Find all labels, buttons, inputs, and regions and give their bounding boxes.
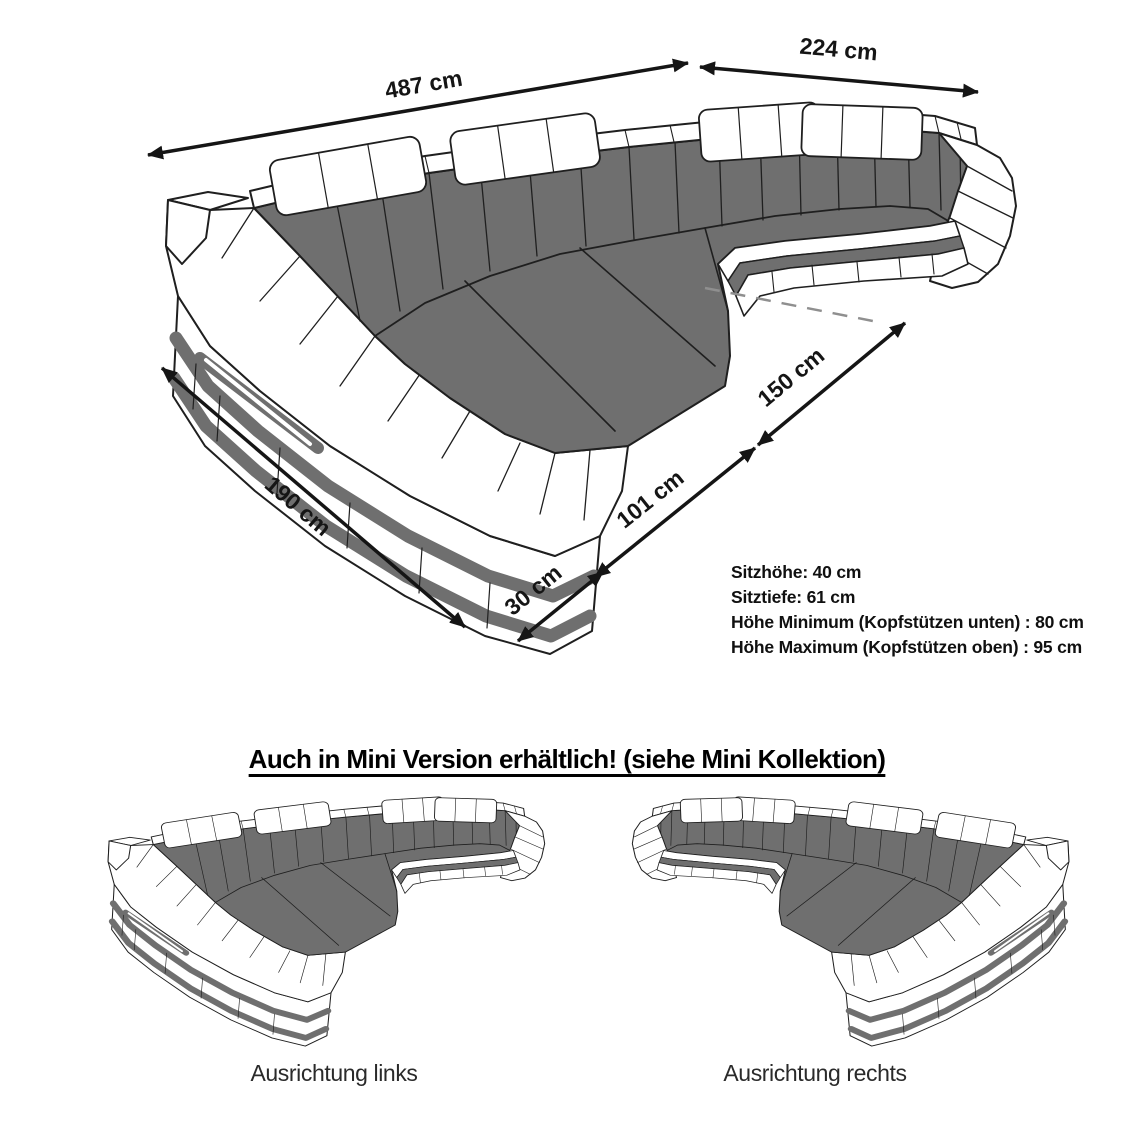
spec-line-seat-depth: Sitztiefe: 61 cm xyxy=(731,585,1131,610)
mini-version-heading-text: Auch in Mini Version erhältlich! (siehe … xyxy=(249,744,886,774)
dimension-label-width-total: 487 cm xyxy=(383,65,464,104)
hidden-edge-dashed-line xyxy=(705,288,878,322)
caption-orientation-left: Ausrichtung links xyxy=(164,1060,504,1087)
product-dimension-sheet: 487 cm 224 cm 150 cm 101 cm 30 cm 190 cm… xyxy=(0,0,1134,1134)
spec-text-block: Sitzhöhe: 40 cm Sitztiefe: 61 cm Höhe Mi… xyxy=(731,560,1131,660)
arrow-width-right xyxy=(700,67,978,92)
mini-version-heading: Auch in Mini Version erhältlich! (siehe … xyxy=(0,744,1134,775)
mini-sofa-right-orientation xyxy=(632,797,1069,1046)
spec-line-seat-height: Sitzhöhe: 40 cm xyxy=(731,560,1131,585)
caption-orientation-right: Ausrichtung rechts xyxy=(645,1060,985,1087)
spec-line-height-min: Höhe Minimum (Kopfstützen unten) : 80 cm xyxy=(731,610,1131,635)
mini-variants-row xyxy=(0,778,1134,1098)
dimension-label-depth-right: 150 cm xyxy=(753,342,830,412)
mini-sofa-left-orientation xyxy=(108,797,545,1046)
spec-line-height-max: Höhe Maximum (Kopfstützen oben) : 95 cm xyxy=(731,635,1131,660)
dimension-label-width-right: 224 cm xyxy=(799,33,879,66)
